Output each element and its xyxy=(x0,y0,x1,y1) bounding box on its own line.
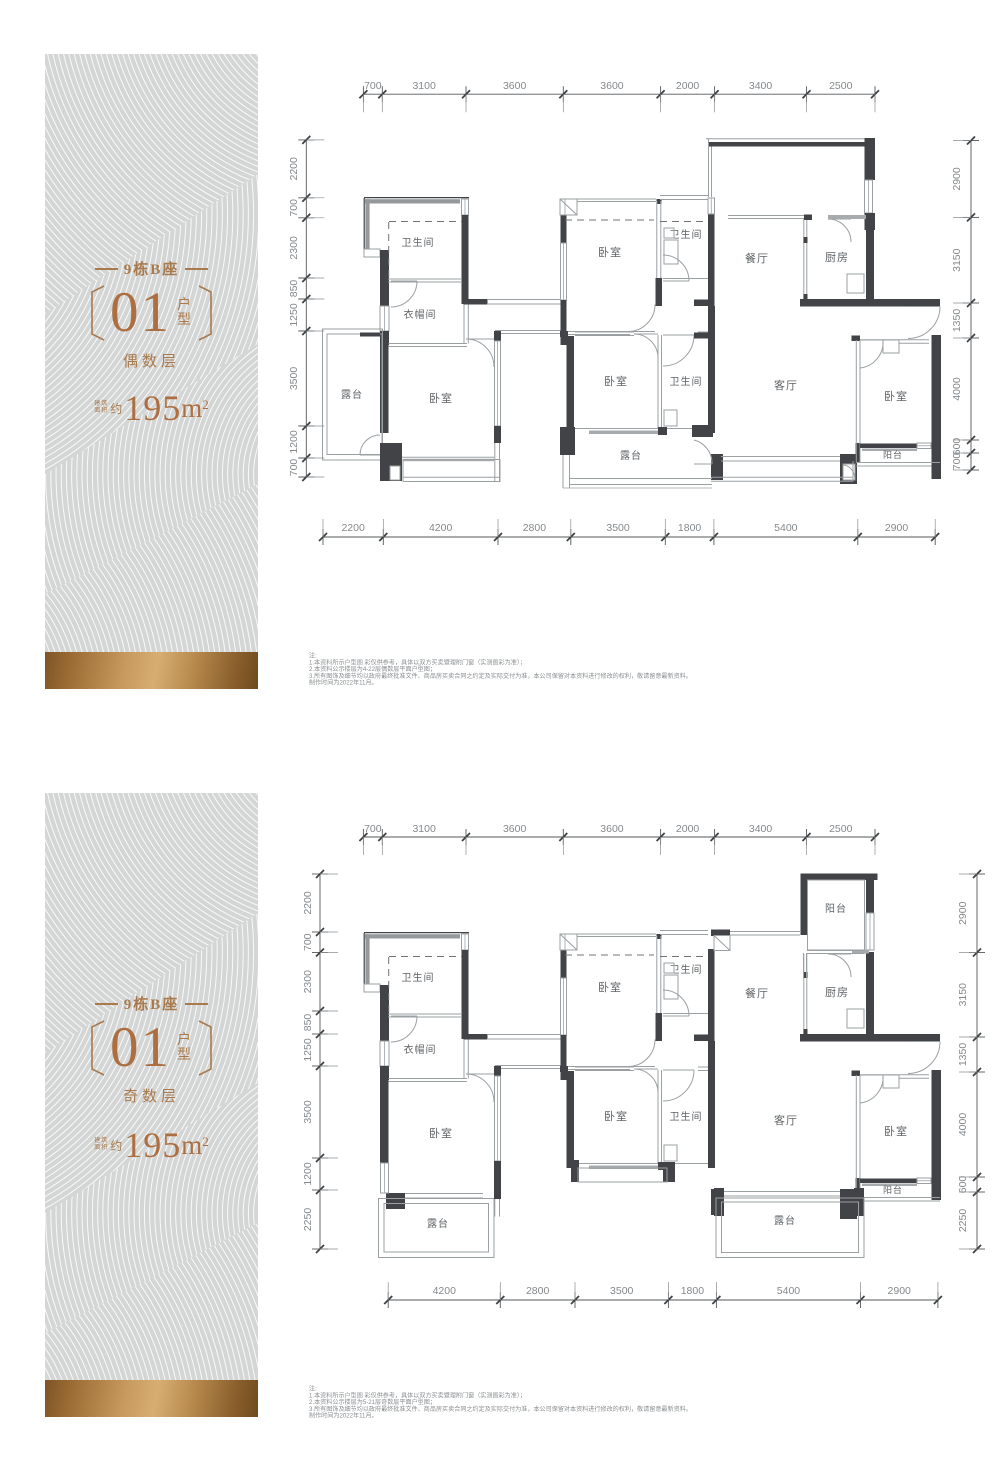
svg-text:700: 700 xyxy=(288,459,300,477)
svg-text:2.本资料公示楼层为5-21层奇数层平面户型图；: 2.本资料公示楼层为5-21层奇数层平面户型图； xyxy=(309,1398,436,1406)
svg-text:700: 700 xyxy=(302,933,314,951)
svg-text:2800: 2800 xyxy=(526,1285,550,1297)
svg-text:注:: 注: xyxy=(309,652,317,660)
svg-text:4200: 4200 xyxy=(429,522,453,534)
svg-text:3150: 3150 xyxy=(957,983,969,1007)
svg-text:1250: 1250 xyxy=(288,303,300,327)
svg-text:卧室: 卧室 xyxy=(429,1126,453,1140)
svg-text:3600: 3600 xyxy=(600,80,624,92)
svg-text:3.所有图饰及细节均以政府最终批准文件、商品房买卖合同之约定: 3.所有图饰及细节均以政府最终批准文件、商品房买卖合同之约定及实际交付为准，本公… xyxy=(309,672,692,680)
svg-text:4000: 4000 xyxy=(951,377,963,401)
svg-text:卧室: 卧室 xyxy=(884,389,908,403)
svg-text:4000: 4000 xyxy=(957,1113,969,1137)
svg-text:1.本资料所示户型图 彩仅供参考，具体以双方买卖暨理附门窗（: 1.本资料所示户型图 彩仅供参考，具体以双方买卖暨理附门窗（实测图彩为准）； xyxy=(309,658,526,666)
svg-text:卫生间: 卫生间 xyxy=(402,236,435,249)
svg-text:1.本资料所示户型图 彩仅供参考，具体以双方买卖暨理附门窗（: 1.本资料所示户型图 彩仅供参考，具体以双方买卖暨理附门窗（实测图彩为准）； xyxy=(309,1391,526,1399)
svg-text:餐厅: 餐厅 xyxy=(745,251,769,265)
svg-text:3100: 3100 xyxy=(412,80,436,92)
svg-text:卧室: 卧室 xyxy=(429,391,453,405)
svg-text:卫生间: 卫生间 xyxy=(402,971,435,984)
svg-text:5400: 5400 xyxy=(774,522,798,534)
svg-text:3500: 3500 xyxy=(610,1285,634,1297)
svg-text:3150: 3150 xyxy=(951,248,963,272)
svg-text:2250: 2250 xyxy=(957,1209,969,1233)
svg-text:客厅: 客厅 xyxy=(774,1113,798,1127)
svg-text:1200: 1200 xyxy=(302,1162,314,1186)
svg-text:2200: 2200 xyxy=(302,891,314,915)
svg-text:3500: 3500 xyxy=(606,522,630,534)
svg-text:1800: 1800 xyxy=(678,522,702,534)
svg-text:露台: 露台 xyxy=(341,388,363,401)
svg-text:2300: 2300 xyxy=(302,970,314,994)
svg-text:露台: 露台 xyxy=(427,1217,449,1230)
svg-text:1800: 1800 xyxy=(681,1285,705,1297)
svg-text:卧室: 卧室 xyxy=(598,245,622,259)
svg-text:3400: 3400 xyxy=(749,80,773,92)
svg-text:2900: 2900 xyxy=(885,522,909,534)
svg-text:2800: 2800 xyxy=(523,522,547,534)
svg-text:衣帽间: 衣帽间 xyxy=(404,1043,437,1056)
svg-text:3600: 3600 xyxy=(503,80,527,92)
svg-text:3100: 3100 xyxy=(412,823,436,835)
svg-text:2500: 2500 xyxy=(829,80,853,92)
svg-text:2250: 2250 xyxy=(302,1208,314,1232)
svg-text:2300: 2300 xyxy=(288,236,300,260)
svg-text:3400: 3400 xyxy=(749,823,773,835)
svg-text:700: 700 xyxy=(288,199,300,217)
svg-text:餐厅: 餐厅 xyxy=(745,986,769,1000)
svg-text:阳台: 阳台 xyxy=(883,449,903,460)
svg-text:850: 850 xyxy=(288,280,300,298)
svg-text:2000: 2000 xyxy=(676,823,700,835)
svg-text:2200: 2200 xyxy=(288,157,300,181)
svg-text:阳台: 阳台 xyxy=(825,902,847,915)
svg-text:3500: 3500 xyxy=(302,1100,314,1124)
svg-text:3600: 3600 xyxy=(503,823,527,835)
svg-text:露台: 露台 xyxy=(774,1214,796,1227)
svg-text:制作时间为2022年11月。: 制作时间为2022年11月。 xyxy=(309,679,378,687)
svg-text:1350: 1350 xyxy=(951,309,963,333)
svg-text:2500: 2500 xyxy=(829,823,853,835)
svg-text:制作时间为2022年11月。: 制作时间为2022年11月。 xyxy=(309,1412,378,1420)
svg-text:卧室: 卧室 xyxy=(598,980,622,994)
svg-text:卧室: 卧室 xyxy=(884,1124,908,1138)
svg-text:1250: 1250 xyxy=(302,1038,314,1062)
svg-text:600: 600 xyxy=(957,1176,969,1194)
svg-text:1350: 1350 xyxy=(957,1043,969,1067)
svg-text:850: 850 xyxy=(302,1014,314,1032)
svg-text:700: 700 xyxy=(364,80,382,92)
svg-text:厨房: 厨房 xyxy=(825,986,849,999)
svg-text:衣帽间: 衣帽间 xyxy=(404,308,437,321)
svg-text:注:: 注: xyxy=(309,1385,317,1393)
svg-text:2900: 2900 xyxy=(957,901,969,925)
svg-text:露台: 露台 xyxy=(620,449,642,462)
svg-text:卫生间: 卫生间 xyxy=(670,375,703,388)
svg-text:5400: 5400 xyxy=(777,1285,801,1297)
svg-text:700: 700 xyxy=(951,453,963,471)
svg-text:2200: 2200 xyxy=(341,522,365,534)
svg-text:卧室: 卧室 xyxy=(604,374,628,388)
svg-text:2900: 2900 xyxy=(888,1285,912,1297)
svg-text:卫生间: 卫生间 xyxy=(670,1110,703,1123)
svg-text:3.所有图饰及细节均以政府最终批准文件、商品房买卖合同之约定: 3.所有图饰及细节均以政府最终批准文件、商品房买卖合同之约定及实际交付为准，本公… xyxy=(309,1405,692,1413)
svg-text:客厅: 客厅 xyxy=(774,378,798,392)
svg-text:3600: 3600 xyxy=(600,823,624,835)
svg-text:4200: 4200 xyxy=(433,1285,457,1297)
svg-text:2.本资料公示楼层为4-22层偶数层平面户型图；: 2.本资料公示楼层为4-22层偶数层平面户型图； xyxy=(309,665,436,673)
svg-text:600: 600 xyxy=(951,438,963,456)
svg-text:3500: 3500 xyxy=(288,367,300,391)
svg-text:厨房: 厨房 xyxy=(825,251,849,264)
svg-text:1200: 1200 xyxy=(288,430,300,454)
svg-text:700: 700 xyxy=(364,823,382,835)
svg-text:2900: 2900 xyxy=(951,167,963,191)
svg-text:阳台: 阳台 xyxy=(883,1184,903,1195)
svg-text:卧室: 卧室 xyxy=(604,1109,628,1123)
svg-text:2000: 2000 xyxy=(676,80,700,92)
